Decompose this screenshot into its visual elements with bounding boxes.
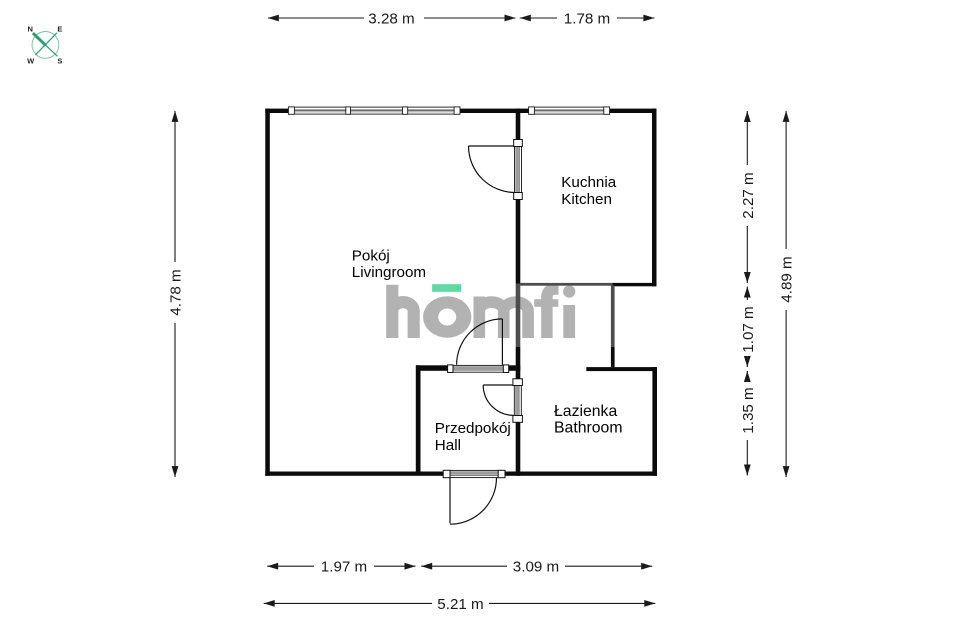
svg-text:N: N [27,25,32,34]
svg-text:Hall: Hall [435,437,461,454]
svg-text:S: S [57,56,62,65]
svg-text:Kitchen: Kitchen [561,191,612,208]
svg-text:Łazienka: Łazienka [554,403,617,420]
svg-text:Pokój: Pokój [352,247,390,264]
svg-text:1.07 m: 1.07 m [740,306,757,352]
svg-text:4.78 m: 4.78 m [168,269,185,315]
svg-text:Przedpokój: Przedpokój [435,420,511,437]
svg-text:3.28 m: 3.28 m [368,11,414,28]
svg-text:5.21 m: 5.21 m [437,596,483,613]
svg-text:W: W [27,56,35,65]
svg-text:Livingroom: Livingroom [352,264,426,281]
svg-text:Kuchnia: Kuchnia [561,174,616,191]
svg-text:2.27 m: 2.27 m [740,172,757,218]
svg-text:3.09 m: 3.09 m [513,559,559,576]
svg-text:E: E [57,25,62,34]
svg-text:4.89 m: 4.89 m [779,256,796,302]
svg-text:Bathroom: Bathroom [554,420,623,437]
svg-text:1.35 m: 1.35 m [740,387,757,433]
svg-text:1.97 m: 1.97 m [321,559,367,576]
svg-text:1.78 m: 1.78 m [564,11,610,28]
